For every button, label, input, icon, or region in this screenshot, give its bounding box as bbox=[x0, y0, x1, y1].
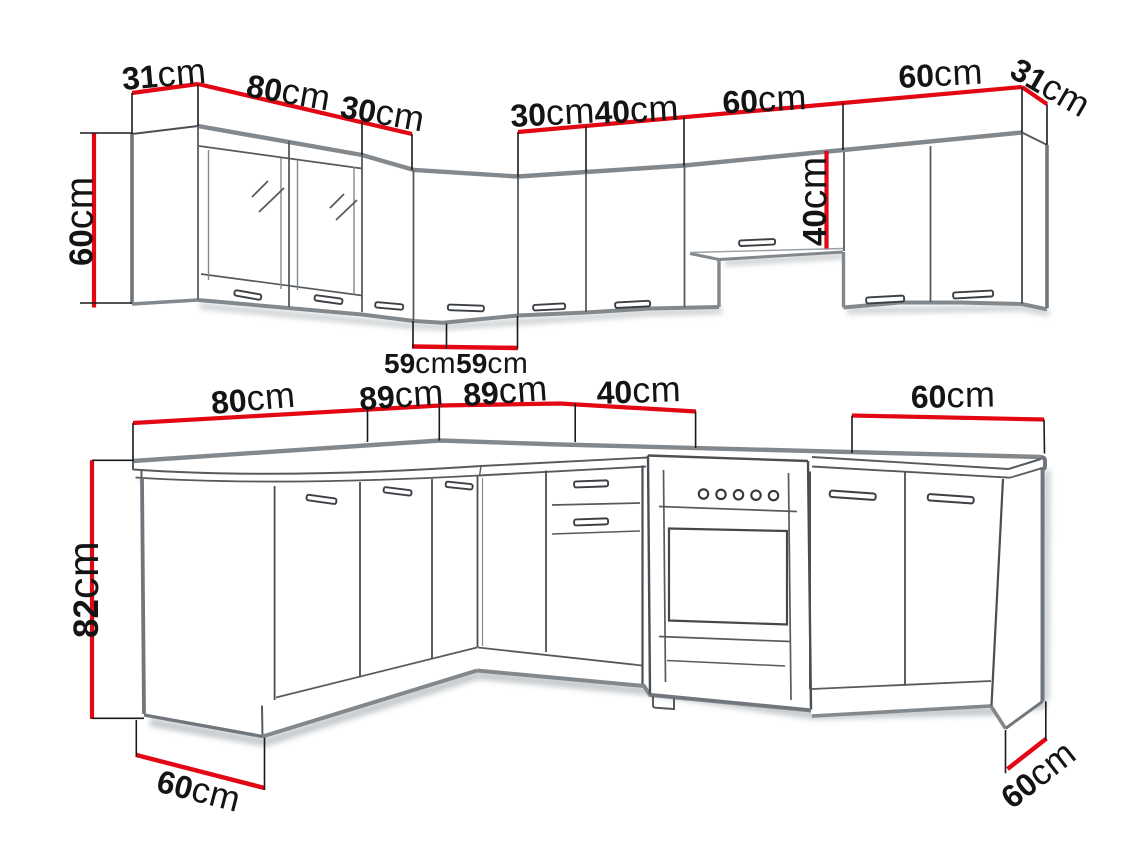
svg-text:40cm: 40cm bbox=[593, 87, 680, 132]
svg-text:40cm: 40cm bbox=[792, 156, 835, 246]
svg-text:60cm: 60cm bbox=[910, 374, 995, 416]
svg-text:60cm: 60cm bbox=[721, 76, 808, 121]
svg-text:30cm: 30cm bbox=[509, 90, 596, 135]
svg-text:60cm: 60cm bbox=[59, 176, 102, 266]
svg-text:40cm: 40cm bbox=[596, 368, 682, 412]
svg-text:60cm: 60cm bbox=[897, 51, 984, 96]
svg-text:82cm: 82cm bbox=[60, 541, 108, 638]
